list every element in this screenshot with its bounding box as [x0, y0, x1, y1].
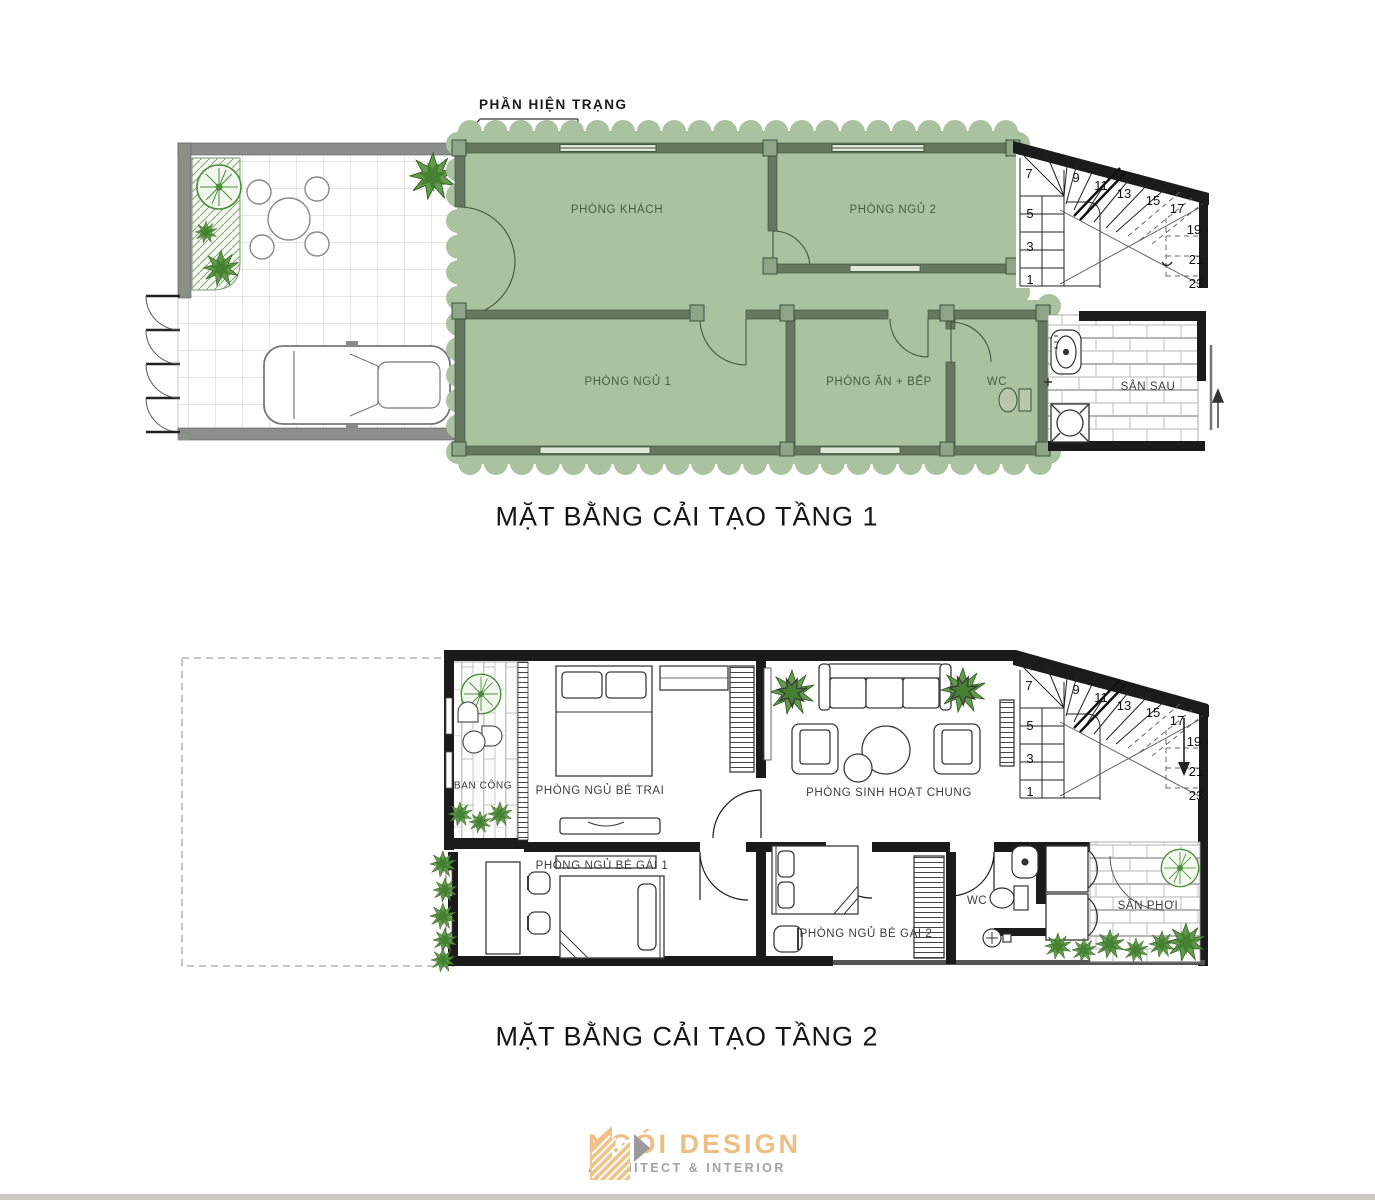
sheet-edge-strip [0, 1194, 1375, 1200]
stair-number: 19 [1187, 222, 1201, 237]
stair-number: 1 [1026, 272, 1033, 287]
front-yard [146, 143, 464, 440]
stair-number: 23 [1189, 276, 1203, 291]
wardrobe [914, 856, 944, 958]
radiator [1000, 700, 1014, 766]
wash-basin [1012, 846, 1038, 878]
stair-number: 21 [1189, 764, 1203, 779]
stair-number: 3 [1026, 751, 1033, 766]
yard-wall-left [178, 143, 191, 298]
room-label-dining-kitchen: PHÒNG ĂN + BẾP [826, 376, 932, 388]
room-label-girl-bedroom1: PHÒNG NGỦ BÉ GÁI 1 [536, 860, 669, 872]
chair [528, 872, 550, 894]
stair-number: 3 [1026, 239, 1033, 254]
stair-number: 15 [1146, 705, 1160, 720]
chair [774, 926, 802, 952]
wardrobe [730, 666, 754, 772]
toilet [990, 886, 1028, 910]
stair-number: 1 [1026, 784, 1033, 799]
room-label-drying-yard: SÂN PHƠI [1118, 900, 1179, 912]
car [264, 341, 450, 429]
entrance-gate-doors [146, 296, 180, 432]
balcony [444, 650, 528, 850]
side-table [844, 754, 872, 782]
stair-number: 11 [1094, 178, 1108, 193]
floor-drain [1051, 404, 1089, 442]
yard-wall-top [178, 143, 464, 155]
stair-number: 21 [1189, 252, 1203, 267]
stair-number: 15 [1146, 193, 1160, 208]
room-label-family-room: PHÒNG SINH HOẠT CHUNG [806, 787, 972, 799]
stair-number: 5 [1026, 718, 1033, 733]
renovation-overlay [446, 120, 1061, 475]
armchair [934, 724, 980, 774]
room-label-balcony: BAN CÔNG [454, 781, 512, 792]
logo-mark-icon [588, 1124, 652, 1182]
laundry-sink [1051, 330, 1081, 374]
room-label-living: PHÒNG KHÁCH [571, 204, 663, 216]
stair-number: 7 [1025, 678, 1032, 693]
void-outline [182, 658, 454, 966]
existing-part-callout: PHẦN HIỆN TRẠNG [479, 97, 628, 112]
stair-number: 9 [1072, 170, 1079, 185]
stair-number: 13 [1117, 698, 1131, 713]
window [764, 668, 771, 760]
stair-number: 17 [1170, 713, 1184, 728]
toilet-f1 [999, 388, 1031, 412]
stair-number: 5 [1026, 206, 1033, 221]
room-label-wc-f1: WC [987, 376, 1007, 388]
stair-number: 17 [1170, 201, 1184, 216]
company-logo: NGÓI DESIGN ARCHITECT & INTERIOR [588, 1130, 801, 1175]
stair-number: 9 [1072, 682, 1079, 697]
room-label-wc-f2: WC [967, 895, 987, 907]
tree-icon [197, 165, 241, 209]
bed-boy [556, 666, 652, 776]
glass-wall [518, 662, 528, 840]
room-label-bedroom1: PHÒNG NGỦ 1 [584, 376, 671, 388]
floor1-plan: 1 3 5 7 9 11 13 15 17 19 21 23 [140, 92, 1230, 480]
bed-girl1 [560, 876, 664, 958]
room-label-boy-bedroom: PHÒNG NGỦ BÉ TRAI [536, 785, 665, 797]
floor2-title: MẶT BẰNG CẢI TẠO TẦNG 2 [495, 1022, 878, 1053]
stair-number: 19 [1187, 734, 1201, 749]
chair [528, 912, 550, 934]
garden-bed [192, 158, 241, 290]
yard-wall-bottom [178, 428, 464, 440]
floor1-title: MẶT BẰNG CẢI TẠO TẦNG 1 [495, 502, 878, 533]
armchair [792, 724, 838, 774]
stair-number: 23 [1189, 788, 1203, 803]
stairs-floor1: 1 3 5 7 9 11 13 15 17 19 21 23 [1013, 141, 1209, 291]
room-label-bedroom2: PHÒNG NGỦ 2 [849, 204, 936, 216]
stair-number: 11 [1094, 690, 1108, 705]
stair-number: 13 [1117, 186, 1131, 201]
desk [486, 862, 520, 954]
tree-icon [1161, 849, 1198, 886]
room-label-girl-bedroom2: PHÒNG NGỦ BÉ GÁI 2 [800, 928, 933, 940]
floorplan-sheet: 1 3 5 7 9 11 13 15 17 19 21 23 [0, 0, 1375, 1200]
stair-number: 7 [1025, 166, 1032, 181]
stairs-floor2: 1 3 5 7 9 11 13 15 17 19 21 23 [1013, 653, 1209, 803]
sofa [819, 664, 951, 710]
floor2-plan: 1 3 5 7 9 11 13 15 17 19 21 23 [140, 630, 1230, 990]
room-label-back-yard: SÂN SAU [1121, 381, 1176, 393]
exit-arrow [1213, 390, 1223, 428]
bed-girl2 [772, 846, 858, 914]
